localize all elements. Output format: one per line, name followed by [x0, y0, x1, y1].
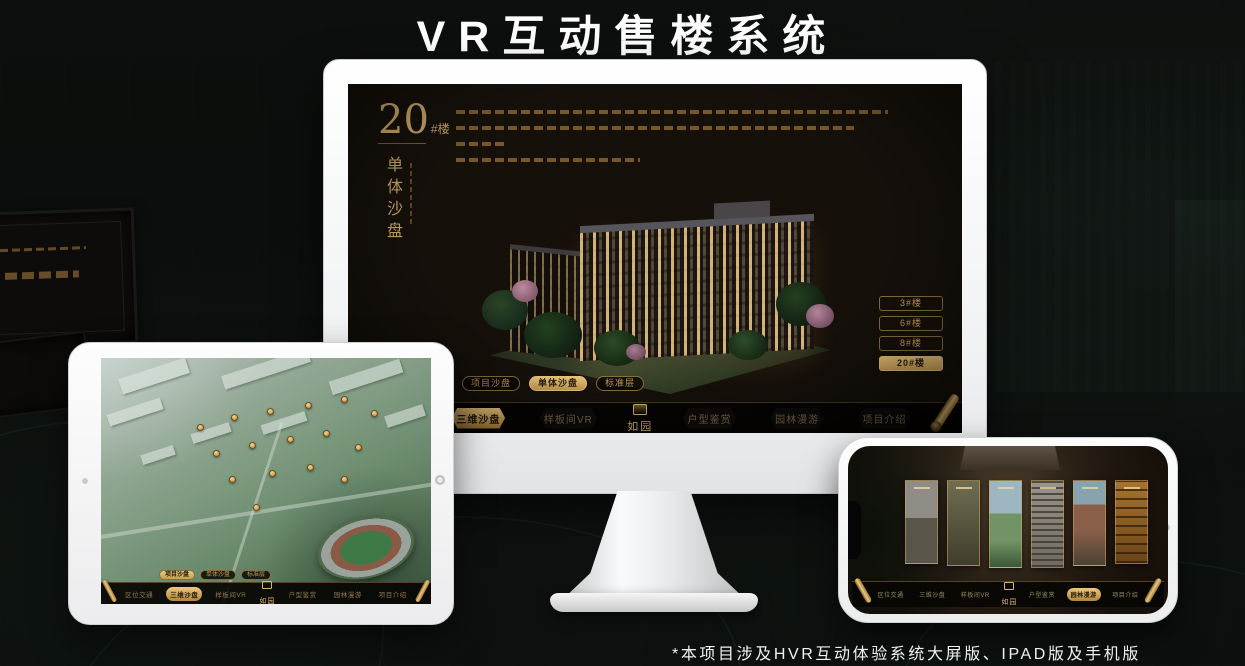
tablet-bottom-nav: 区位交通 三维沙盘 样板间VR 如园 户型鉴赏 园林漫游 项目介绍 [101, 582, 431, 604]
blossom-tree [512, 280, 538, 302]
tablet-home-button[interactable] [435, 475, 445, 485]
building-marker[interactable] [323, 430, 330, 437]
tablet-device: 项目沙盘 单体沙盘 标准层 区位交通 三维沙盘 样板间VR 如园 户型鉴赏 园林… [68, 342, 454, 625]
nav-item-sandtable[interactable]: 三维沙盘 [915, 588, 949, 601]
panel-caption [998, 487, 1014, 489]
building-selector: 3#楼 6#楼 8#楼 20#楼 [879, 296, 943, 376]
phone-notch [848, 501, 861, 559]
subtab-project[interactable]: 项目沙盘 [462, 376, 520, 391]
building-marker[interactable] [253, 504, 260, 511]
footnote-caption: *本项目涉及HVR互动体验系统大屏版、IPAD版及手机版 [672, 640, 1141, 664]
city-block [329, 359, 404, 395]
tree [524, 312, 582, 358]
building-marker[interactable] [229, 476, 236, 483]
nav-item-garden-tour[interactable]: 园林漫游 [766, 408, 828, 429]
ceiling-beam [960, 446, 1060, 470]
scroll-menu-icon[interactable] [854, 577, 873, 603]
tablet-subtabs: 项目沙盘 单体沙盘 标准层 [159, 570, 271, 580]
city-block [221, 358, 311, 390]
subtab-floor[interactable]: 标准层 [596, 376, 644, 391]
building-marker[interactable] [269, 470, 276, 477]
scroll-menu-icon[interactable] [1144, 577, 1163, 603]
subtitle-english-caption [410, 160, 412, 224]
page-title: VR互动售楼系统 [0, 2, 1245, 64]
scene-gallery [905, 480, 1148, 568]
nav-item-project-intro[interactable]: 项目介绍 [1108, 588, 1142, 601]
phone-bottom-nav: 区位交通 三维沙盘 样板间VR 如园 户型鉴赏 园林漫游 项目介绍 [852, 581, 1164, 607]
building-number: 20 [378, 97, 429, 143]
nav-item-floorplans[interactable]: 户型鉴赏 [285, 587, 321, 601]
panel-caption [1040, 487, 1056, 489]
building-marker[interactable] [305, 402, 312, 409]
building-button-active[interactable]: 20#楼 [879, 356, 943, 371]
brand-crest-icon [262, 581, 272, 589]
subtab-single[interactable]: 单体沙盘 [200, 570, 236, 580]
gallery-panel-garden[interactable] [989, 480, 1022, 568]
heading-rule [378, 143, 426, 144]
screen-subtitle-vertical: 单体沙盘 [381, 156, 405, 276]
subtab-single-active[interactable]: 单体沙盘 [529, 376, 587, 391]
screen-heading: 20#楼 [378, 100, 450, 144]
tree [728, 330, 768, 360]
stadium [311, 507, 421, 589]
city-block [140, 445, 175, 465]
city-block [118, 358, 190, 394]
city-block [107, 398, 164, 427]
subtab-floor[interactable]: 标准层 [241, 570, 271, 580]
tablet-camera-icon [82, 478, 88, 484]
nav-item-sandtable-active[interactable]: 三维沙盘 [166, 587, 202, 601]
building-marker[interactable] [267, 408, 274, 415]
phone-screen-panorama: 区位交通 三维沙盘 样板间VR 如园 户型鉴赏 园林漫游 项目介绍 [848, 446, 1168, 614]
description-line [456, 142, 508, 146]
nav-item-project-intro[interactable]: 项目介绍 [854, 408, 916, 429]
brand-logo-text: 如园 [259, 597, 275, 604]
sandtable-subtabs: 项目沙盘 单体沙盘 标准层 [462, 376, 644, 391]
tablet-screen-aerial-view: 项目沙盘 单体沙盘 标准层 区位交通 三维沙盘 样板间VR 如园 户型鉴赏 园林… [101, 358, 431, 604]
nav-item-floorplans[interactable]: 户型鉴赏 [1025, 588, 1059, 601]
brand-logo-text: 如园 [627, 420, 653, 433]
panel-caption [914, 487, 930, 489]
nav-item-sandtable-active[interactable]: 三维沙盘 [447, 408, 509, 429]
building-marker[interactable] [249, 442, 256, 449]
nav-item-garden-tour[interactable]: 园林漫游 [330, 587, 366, 601]
building-marker[interactable] [341, 476, 348, 483]
brand-logo-text: 如园 [1001, 598, 1017, 606]
gallery-panel-shelves[interactable] [1115, 480, 1148, 564]
building-button[interactable]: 6#楼 [879, 316, 943, 331]
scroll-menu-icon[interactable] [102, 579, 118, 603]
building-marker[interactable] [287, 436, 294, 443]
poster-stage: VR互动售楼系统 20#楼 单体沙盘 [0, 0, 1245, 666]
brand-logo: 如园 [1001, 582, 1017, 607]
panel-caption [1124, 487, 1140, 489]
gallery-panel-interior[interactable] [905, 480, 938, 564]
scroll-menu-icon[interactable] [415, 579, 431, 603]
nav-item-floorplans[interactable]: 户型鉴赏 [679, 408, 741, 429]
subtab-project-active[interactable]: 项目沙盘 [159, 570, 195, 580]
description-line [456, 126, 854, 130]
gallery-panel-lounge[interactable] [947, 480, 980, 566]
gallery-panel-landscape[interactable] [1073, 480, 1106, 566]
city-block [384, 404, 426, 428]
nav-item-location[interactable]: 区位交通 [874, 588, 908, 601]
nav-item-project-intro[interactable]: 项目介绍 [375, 587, 411, 601]
building-marker[interactable] [355, 444, 362, 451]
panel-caption [1082, 487, 1098, 489]
blossom-tree [626, 344, 646, 360]
gallery-panel-building[interactable] [1031, 480, 1064, 568]
panel-caption [956, 487, 972, 489]
monitor-stand-base [550, 593, 758, 612]
building-marker[interactable] [197, 424, 204, 431]
nav-item-showroom-vr[interactable]: 样板间VR [535, 408, 602, 429]
building-number-unit: #楼 [431, 122, 450, 136]
phone-device: 区位交通 三维沙盘 样板间VR 如园 户型鉴赏 园林漫游 项目介绍 [838, 437, 1178, 623]
brand-crest-icon [633, 404, 647, 415]
building-penthouse [714, 201, 770, 220]
building-marker[interactable] [213, 450, 220, 457]
nav-item-location[interactable]: 区位交通 [121, 587, 157, 601]
building-marker[interactable] [307, 464, 314, 471]
city-block [261, 411, 308, 435]
scroll-menu-icon[interactable] [931, 393, 960, 431]
nav-item-garden-tour-active[interactable]: 园林漫游 [1067, 588, 1101, 601]
building-marker[interactable] [341, 396, 348, 403]
background-river [1175, 200, 1245, 440]
building-marker[interactable] [371, 410, 378, 417]
building-button[interactable]: 8#楼 [879, 336, 943, 351]
description-line [456, 110, 888, 114]
nav-item-showroom-vr[interactable]: 样板间VR [211, 587, 250, 601]
building-button[interactable]: 3#楼 [879, 296, 943, 311]
building-3d-model[interactable] [476, 162, 844, 397]
building-marker[interactable] [231, 414, 238, 421]
brand-crest-icon [1004, 582, 1014, 590]
brand-logo: 如园 [627, 404, 653, 433]
blossom-tree [806, 304, 834, 328]
nav-item-showroom-vr[interactable]: 样板间VR [957, 588, 994, 601]
background-award-plaque [0, 207, 138, 348]
brand-logo: 如园 [259, 581, 275, 604]
